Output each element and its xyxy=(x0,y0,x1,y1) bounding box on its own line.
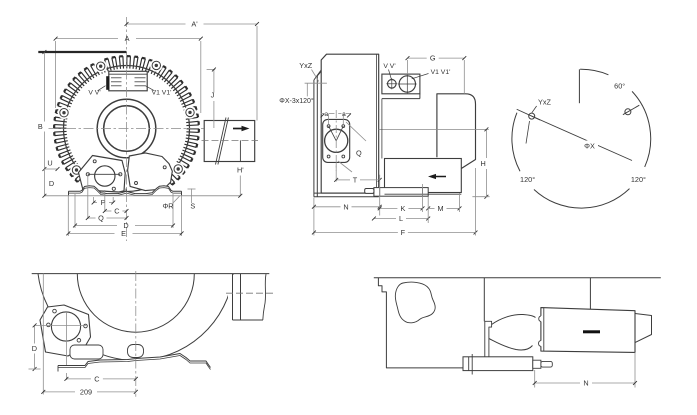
svg-text:N: N xyxy=(583,379,588,388)
svg-text:V V': V V' xyxy=(383,63,395,70)
svg-text:H: H xyxy=(481,159,486,168)
svg-text:M: M xyxy=(437,204,443,213)
svg-text:ΦR: ΦR xyxy=(162,201,173,210)
svg-text:S: S xyxy=(190,201,195,210)
svg-text:C: C xyxy=(94,375,99,384)
svg-text:N: N xyxy=(343,202,348,211)
svg-text:YxZ: YxZ xyxy=(299,61,313,70)
svg-text:ΦX: ΦX xyxy=(584,142,595,151)
svg-text:YxZ: YxZ xyxy=(538,98,552,107)
svg-text:E: E xyxy=(121,229,126,238)
svg-text:C: C xyxy=(114,207,119,216)
svg-text:L: L xyxy=(399,214,403,223)
svg-text:A: A xyxy=(125,34,130,43)
svg-text:V1 V1': V1 V1' xyxy=(431,69,451,76)
svg-text:120°: 120° xyxy=(520,175,535,184)
svg-text:F: F xyxy=(401,228,406,237)
svg-text:D: D xyxy=(49,179,54,188)
svg-text:T: T xyxy=(353,176,358,185)
svg-text:U: U xyxy=(47,159,52,168)
svg-text:209: 209 xyxy=(80,388,92,397)
svg-text:J: J xyxy=(211,91,215,100)
svg-text:B: B xyxy=(38,122,43,131)
svg-text:Q: Q xyxy=(98,214,104,223)
svg-text:a: a xyxy=(324,111,328,118)
svg-text:D: D xyxy=(32,344,37,353)
svg-text:G: G xyxy=(430,54,436,63)
svg-text:Q: Q xyxy=(356,148,362,157)
svg-text:ΦX-3x120°: ΦX-3x120° xyxy=(279,97,314,105)
svg-text:H': H' xyxy=(237,165,244,174)
svg-text:K: K xyxy=(400,204,405,213)
svg-text:a: a xyxy=(342,111,346,118)
svg-text:120°: 120° xyxy=(631,175,646,184)
svg-text:A': A' xyxy=(191,20,198,29)
svg-text:60°: 60° xyxy=(614,81,625,90)
svg-text:V V': V V' xyxy=(88,90,100,97)
